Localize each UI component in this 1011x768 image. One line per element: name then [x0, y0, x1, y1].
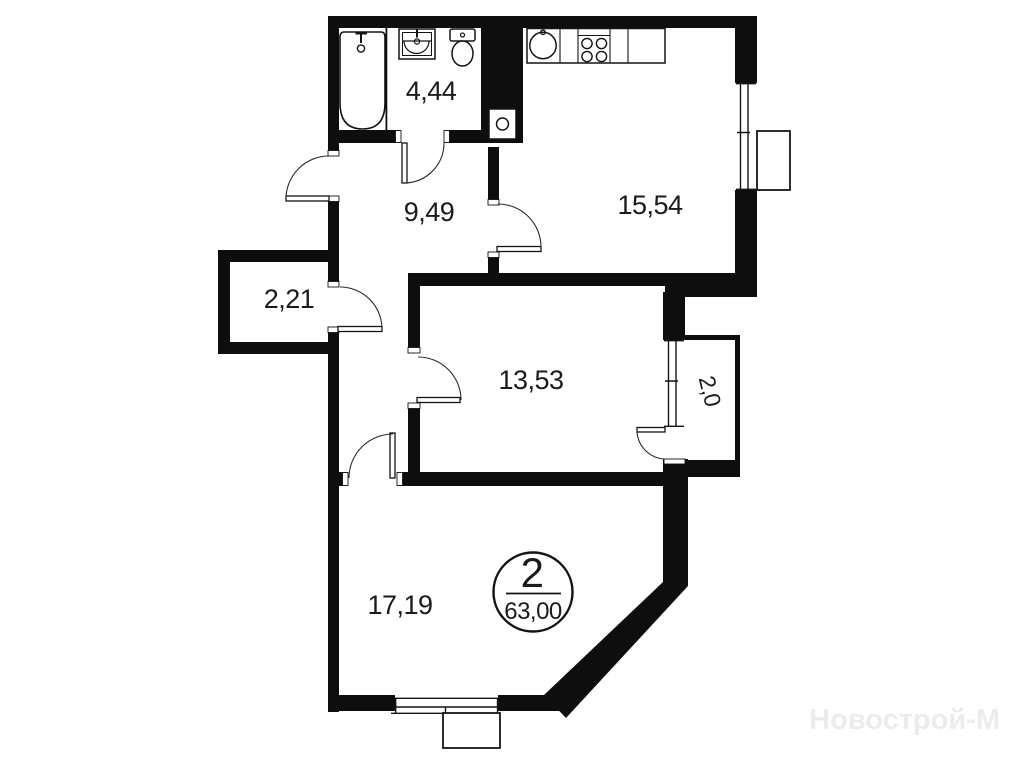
door-jambs: [328, 131, 685, 486]
floor-plan-canvas: 4,44 9,49 15,54 2,21 13,53 17,19 2,0 2 6…: [0, 0, 1011, 768]
entrance-door-icon: [286, 156, 329, 201]
bathroom-sink-icon: [399, 29, 435, 59]
bathroom-door-icon: [402, 143, 444, 183]
balcony-window-icon: [664, 340, 684, 427]
living-room-window-icon: [391, 698, 500, 713]
balcony-door-icon: [637, 428, 666, 460]
room-label-bathroom: 4,44: [406, 76, 457, 106]
room-door-icon: [417, 357, 461, 403]
apartment-badge: 2 63,00: [494, 549, 573, 632]
doors: [286, 143, 666, 478]
bathtub-icon: [340, 32, 385, 129]
room-label-living: 17,19: [367, 590, 432, 620]
room-label-balcony: 2,0: [694, 373, 727, 409]
badge-total-area: 63,00: [504, 598, 562, 625]
kitchen-sink-icon: [530, 30, 556, 59]
ventilation-shaft-icon: [489, 109, 516, 139]
kitchen-window-icon: [736, 83, 756, 190]
kitchen-door-icon: [497, 204, 541, 252]
kitchen-fixtures: [527, 29, 665, 64]
room-label-hallway: 9,49: [404, 197, 455, 227]
room-label-kitchen: 15,54: [617, 190, 683, 220]
badge-rooms-count: 2: [521, 549, 544, 596]
room-label-storage: 2,21: [264, 284, 315, 314]
room-label-room: 13,53: [498, 365, 563, 395]
toilet-icon: [450, 29, 475, 66]
floor-plan: 4,44 9,49 15,54 2,21 13,53 17,19 2,0 2 6…: [0, 0, 1011, 768]
stove-icon: [578, 36, 610, 62]
watermark-text: Новострой-М: [809, 704, 1000, 736]
kitchen-window-box: [757, 131, 790, 190]
storage-door-icon: [338, 287, 382, 332]
living-room-door-icon: [349, 433, 395, 478]
living-window-box: [443, 713, 500, 748]
